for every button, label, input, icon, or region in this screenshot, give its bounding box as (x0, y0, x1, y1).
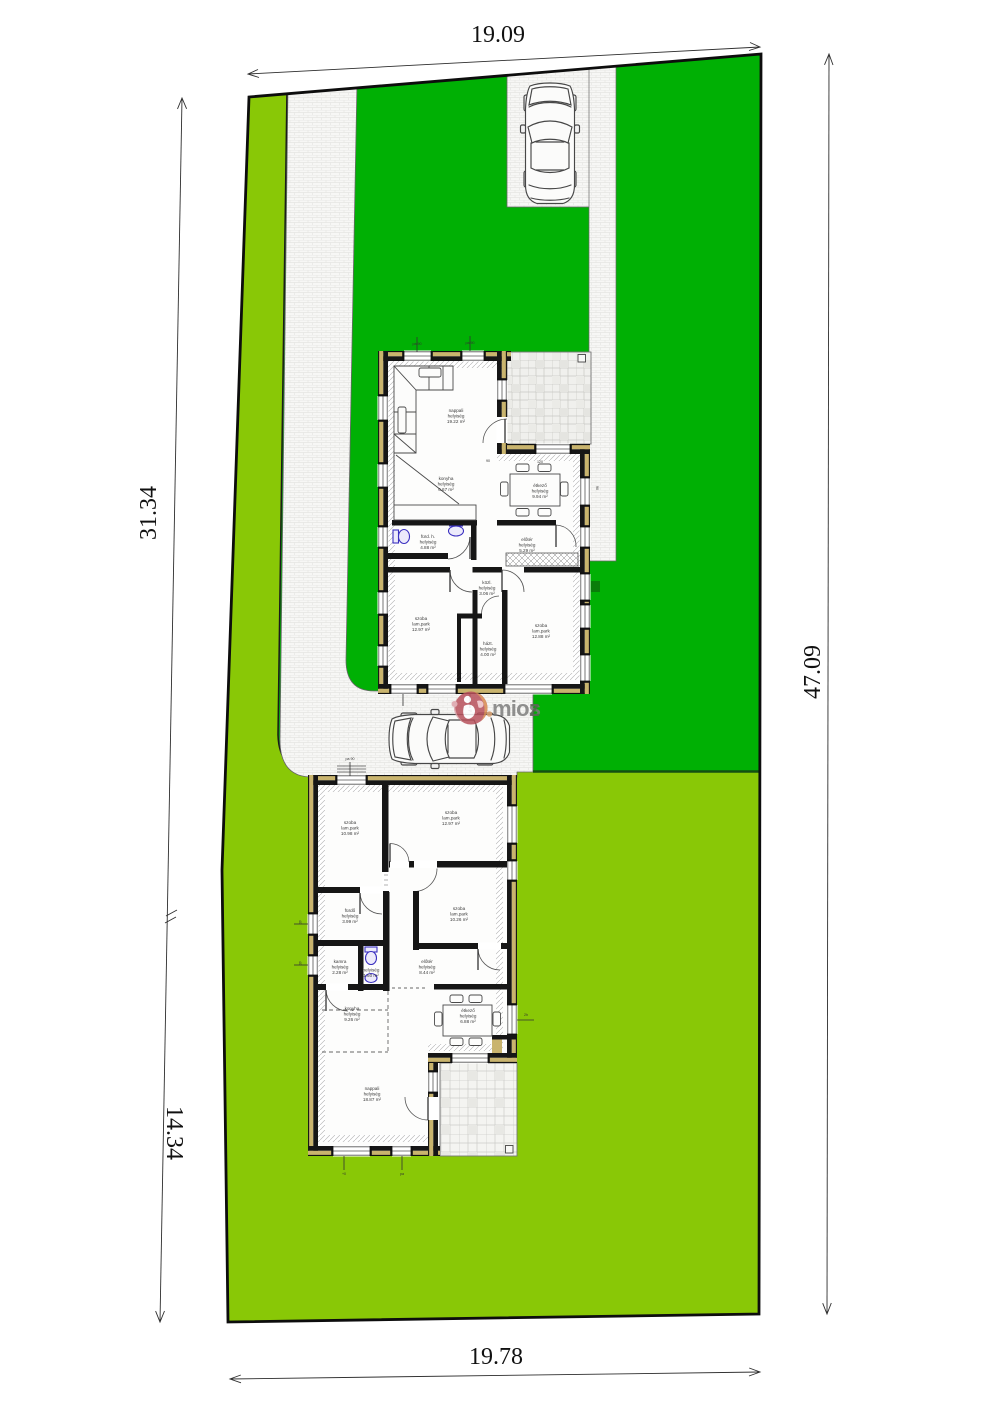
svg-text:helyiség1.60 m²: helyiség1.60 m² (363, 968, 380, 979)
svg-text:konyhahelyiség6.67 m²: konyhahelyiség6.67 m² (438, 476, 455, 492)
svg-text:40: 40 (298, 920, 302, 924)
svg-text:pa 90: pa 90 (346, 757, 355, 761)
svg-text:31.34: 31.34 (136, 486, 162, 540)
svg-text:+0: +0 (342, 1172, 346, 1176)
svg-text:nappalihelyiség18.87 m²: nappalihelyiség18.87 m² (363, 1086, 382, 1102)
svg-text:nappalihelyiség19.22 m²: nappalihelyiség19.22 m² (447, 408, 466, 424)
svg-text:pa 90: pa 90 (466, 341, 475, 345)
svg-text:fürd. h.helyiség4.88 m²: fürd. h.helyiség4.88 m² (420, 534, 437, 550)
svg-text:90: 90 (595, 486, 599, 490)
svg-text:étkezőhelyiség6.88 m²: étkezőhelyiség6.88 m² (460, 1008, 477, 1024)
svg-text:pa: pa (400, 1172, 404, 1176)
svg-text:19.09: 19.09 (471, 22, 525, 48)
svg-text:z: z (529, 696, 540, 721)
svg-text:2h: 2h (524, 1013, 528, 1017)
svg-text:étkezőhelyiség9.94 m²: étkezőhelyiség9.94 m² (532, 483, 549, 499)
svg-text:konyhahelyiség9.26 m²: konyhahelyiség9.26 m² (344, 1006, 361, 1022)
svg-text:kamrahelyiség2.28 m²: kamrahelyiség2.28 m² (332, 959, 349, 975)
svg-text:40: 40 (298, 961, 302, 965)
svg-text:19.78: 19.78 (469, 1344, 523, 1370)
svg-text:14.34: 14.34 (161, 1106, 187, 1160)
svg-text:pa 90: pa 90 (413, 342, 422, 346)
svg-text:47.09: 47.09 (800, 645, 826, 699)
svg-text:90: 90 (486, 459, 490, 463)
svg-text:120: 120 (537, 460, 543, 464)
